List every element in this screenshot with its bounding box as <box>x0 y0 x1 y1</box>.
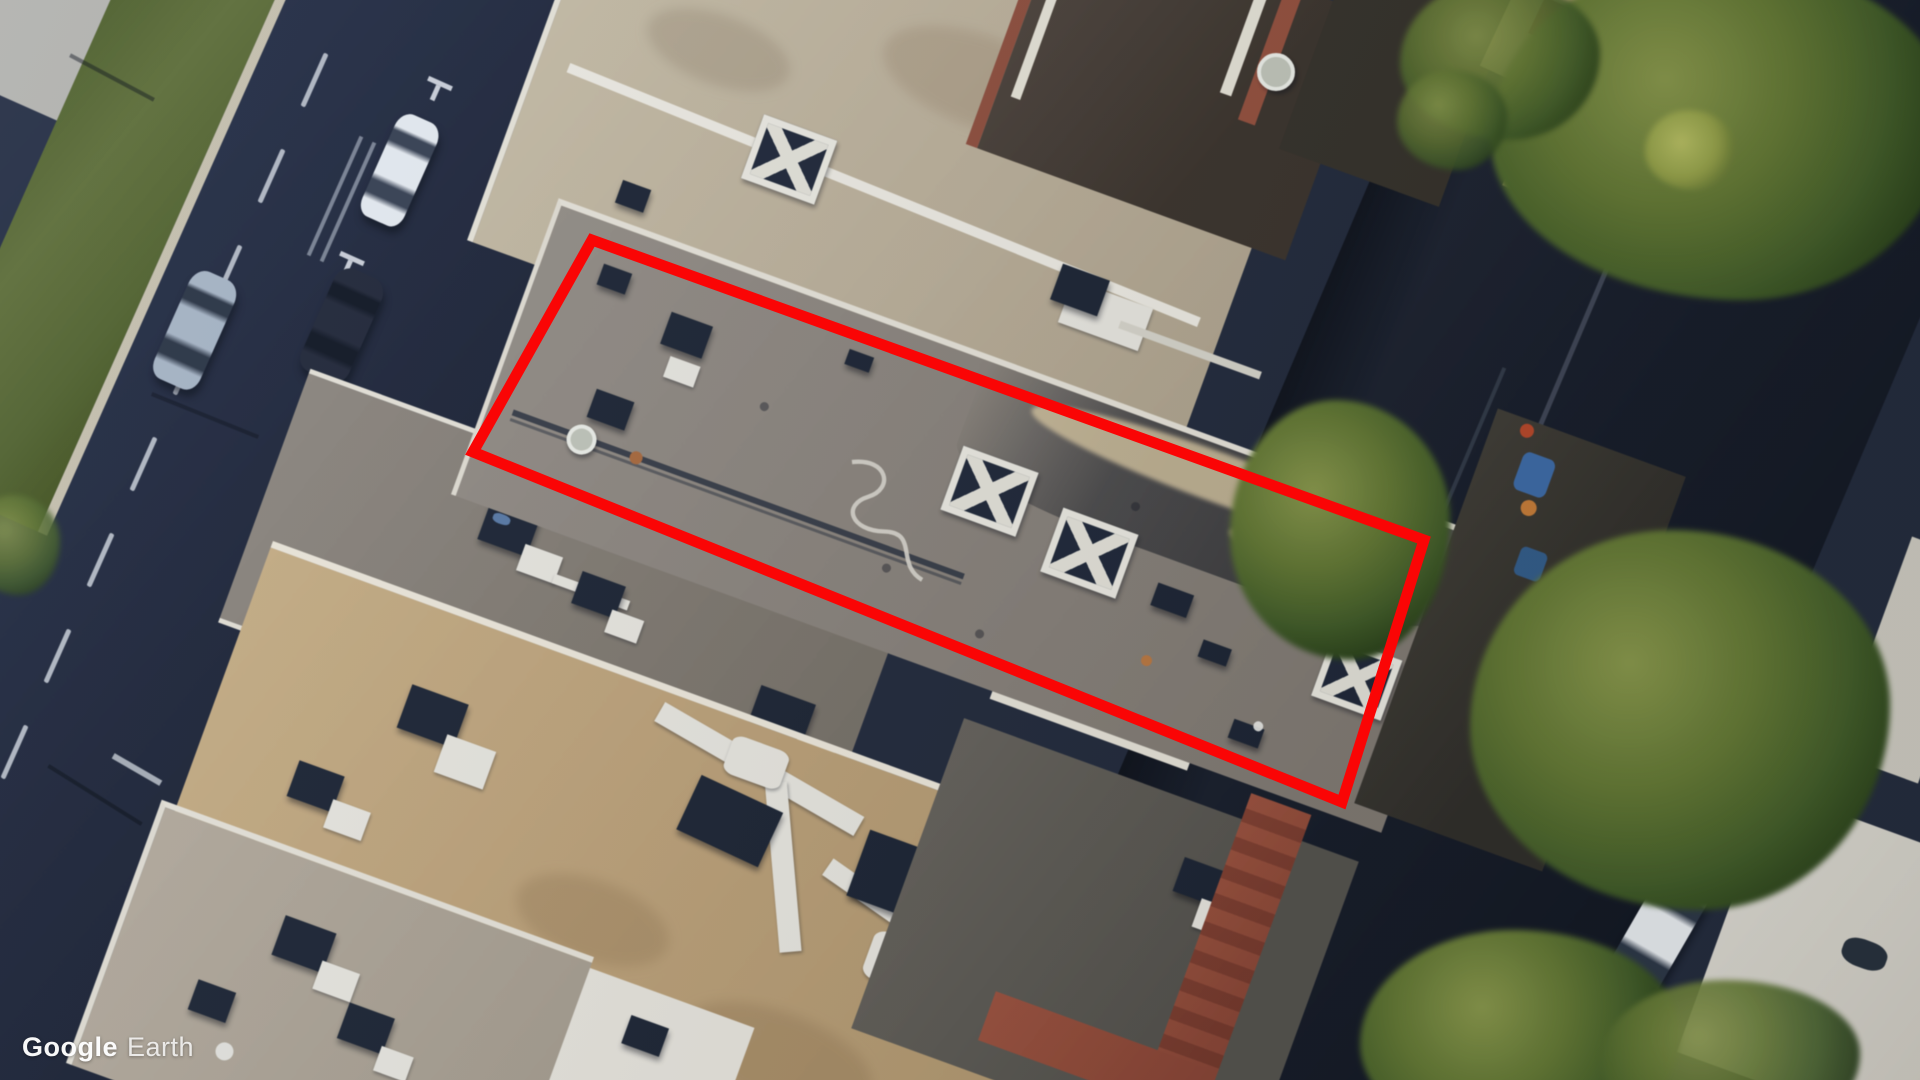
annotation-layer <box>0 0 1920 1080</box>
building-outline-annotation[interactable] <box>473 240 1424 802</box>
google-earth-watermark: GoogleEarth <box>22 1032 194 1063</box>
watermark-product-text: Earth <box>127 1032 194 1062</box>
satellite-map-viewport[interactable]: GoogleEarth <box>0 0 1920 1080</box>
watermark-brand-text: Google <box>22 1032 118 1062</box>
